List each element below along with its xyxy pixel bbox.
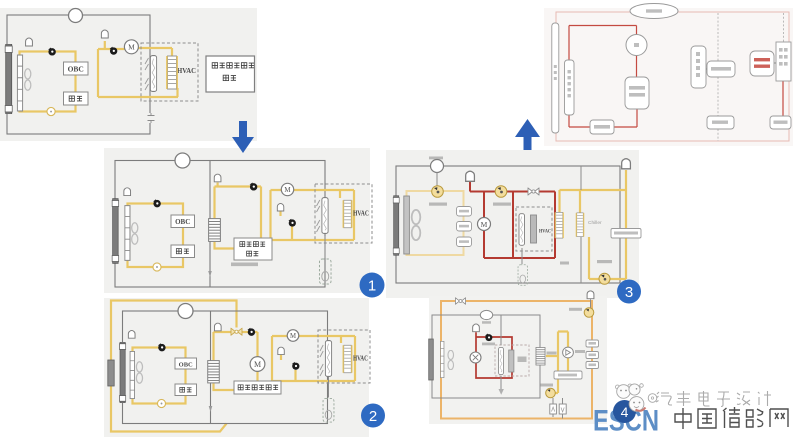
svg-text:HVAC: HVAC (177, 66, 196, 75)
svg-text:M: M (254, 360, 261, 369)
svg-text:2: 2 (369, 408, 377, 425)
svg-text:M: M (481, 220, 488, 229)
svg-text:OBC: OBC (175, 218, 190, 226)
svg-text:Chiller: Chiller (588, 220, 602, 226)
svg-text:HVAC: HVAC (539, 229, 551, 235)
svg-text:M: M (284, 186, 291, 194)
svg-text:M: M (128, 43, 135, 52)
svg-text:M: M (290, 333, 296, 340)
svg-text:HVAC: HVAC (353, 210, 369, 218)
svg-text:OBC: OBC (179, 361, 193, 368)
svg-text:HVAC: HVAC (353, 355, 368, 363)
svg-text:4: 4 (621, 404, 629, 420)
svg-text:1: 1 (368, 278, 376, 295)
svg-text:3: 3 (625, 284, 633, 301)
svg-text:OBC: OBC (68, 65, 84, 74)
